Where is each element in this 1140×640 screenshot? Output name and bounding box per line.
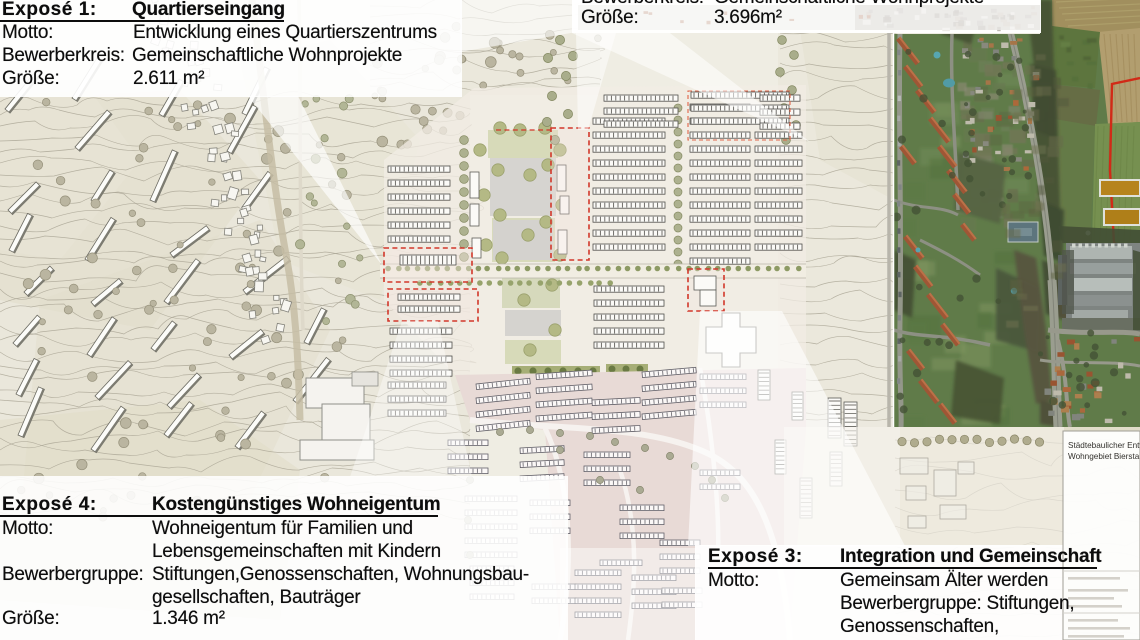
svg-text:Wohngebiet Biersta: Wohngebiet Biersta [1068,452,1140,461]
svg-text:Städtebaulicher Entw: Städtebaulicher Entw [1068,441,1140,450]
